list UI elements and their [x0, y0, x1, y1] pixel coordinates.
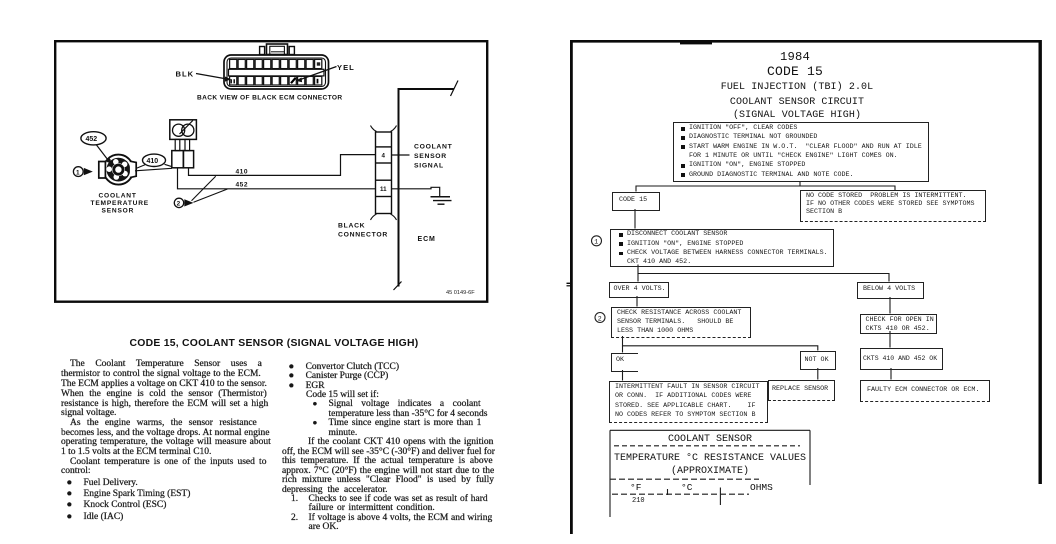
- svg-text:452: 452: [236, 182, 249, 189]
- svg-text:4: 4: [382, 152, 386, 159]
- svg-text:BLACK: BLACK: [338, 222, 365, 229]
- svg-text:TEMPERATURE: TEMPERATURE: [91, 200, 150, 207]
- svg-text:452: 452: [86, 136, 98, 143]
- svg-text:BLK: BLK: [176, 70, 195, 79]
- svg-text:ECM: ECM: [418, 236, 436, 243]
- svg-text:1: 1: [594, 239, 598, 246]
- svg-text:SENSOR: SENSOR: [102, 207, 135, 214]
- svg-text:BACK VIEW OF BLACK ECM CONNECT: BACK VIEW OF BLACK ECM CONNECTOR: [197, 95, 343, 102]
- svg-text:SENSOR: SENSOR: [414, 153, 447, 160]
- svg-text:SIGNAL: SIGNAL: [414, 162, 444, 169]
- svg-text:YEL: YEL: [337, 63, 355, 72]
- svg-text:11: 11: [380, 186, 387, 193]
- svg-text:COOLANT: COOLANT: [99, 193, 137, 200]
- svg-text:45 0149-6F: 45 0149-6F: [446, 290, 475, 296]
- svg-text:COOLANT: COOLANT: [414, 144, 453, 151]
- svg-text:1: 1: [76, 169, 80, 176]
- svg-text:2: 2: [177, 201, 181, 208]
- svg-text:CONNECTOR: CONNECTOR: [338, 231, 388, 238]
- svg-text:410: 410: [236, 168, 249, 175]
- svg-text:410: 410: [147, 158, 159, 165]
- svg-text:2: 2: [598, 315, 602, 322]
